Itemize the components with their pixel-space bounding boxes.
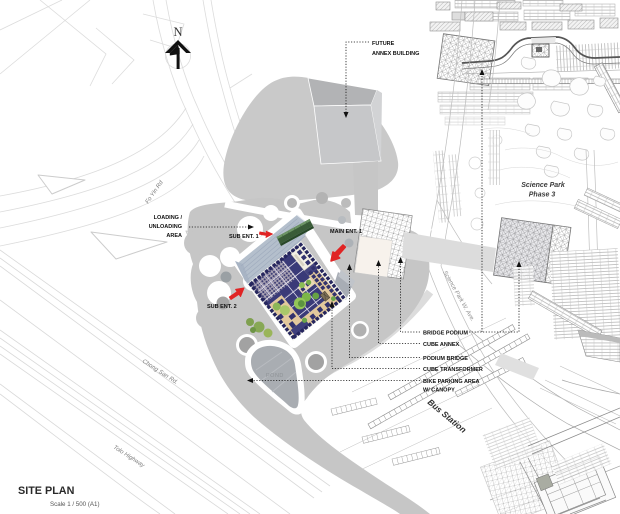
svg-text:MAIN ENT. 1: MAIN ENT. 1 [330, 229, 362, 235]
svg-text:ANNEX BUILDING: ANNEX BUILDING [372, 51, 419, 57]
svg-text:W/ CANOPY: W/ CANOPY [423, 388, 455, 394]
svg-text:BIKE PARKING AREA: BIKE PARKING AREA [423, 379, 480, 385]
svg-text:CUBE TRANSFORMER: CUBE TRANSFORMER [423, 367, 483, 373]
svg-text:SITE PLAN: SITE PLAN [18, 485, 75, 497]
svg-text:POND: POND [266, 373, 284, 379]
svg-text:LOADING /: LOADING / [154, 215, 183, 221]
svg-text:Scale 1 / 500 (A1): Scale 1 / 500 (A1) [50, 501, 100, 508]
svg-text:FUTURE: FUTURE [372, 41, 395, 47]
svg-text:AREA: AREA [166, 233, 182, 239]
svg-text:BRIDGE PODIUM: BRIDGE PODIUM [423, 331, 468, 337]
svg-text:UNLOADING: UNLOADING [149, 224, 182, 230]
svg-text:PODIUM BRIDGE: PODIUM BRIDGE [423, 356, 468, 362]
svg-text:Science Park: Science Park [521, 182, 566, 189]
svg-text:SUB ENT. 1: SUB ENT. 1 [229, 234, 259, 240]
svg-text:CUBE ANNEX: CUBE ANNEX [423, 342, 459, 348]
svg-text:SUB ENT. 2: SUB ENT. 2 [207, 304, 237, 310]
svg-text:N: N [173, 25, 182, 39]
svg-text:Phase 3: Phase 3 [529, 192, 556, 199]
